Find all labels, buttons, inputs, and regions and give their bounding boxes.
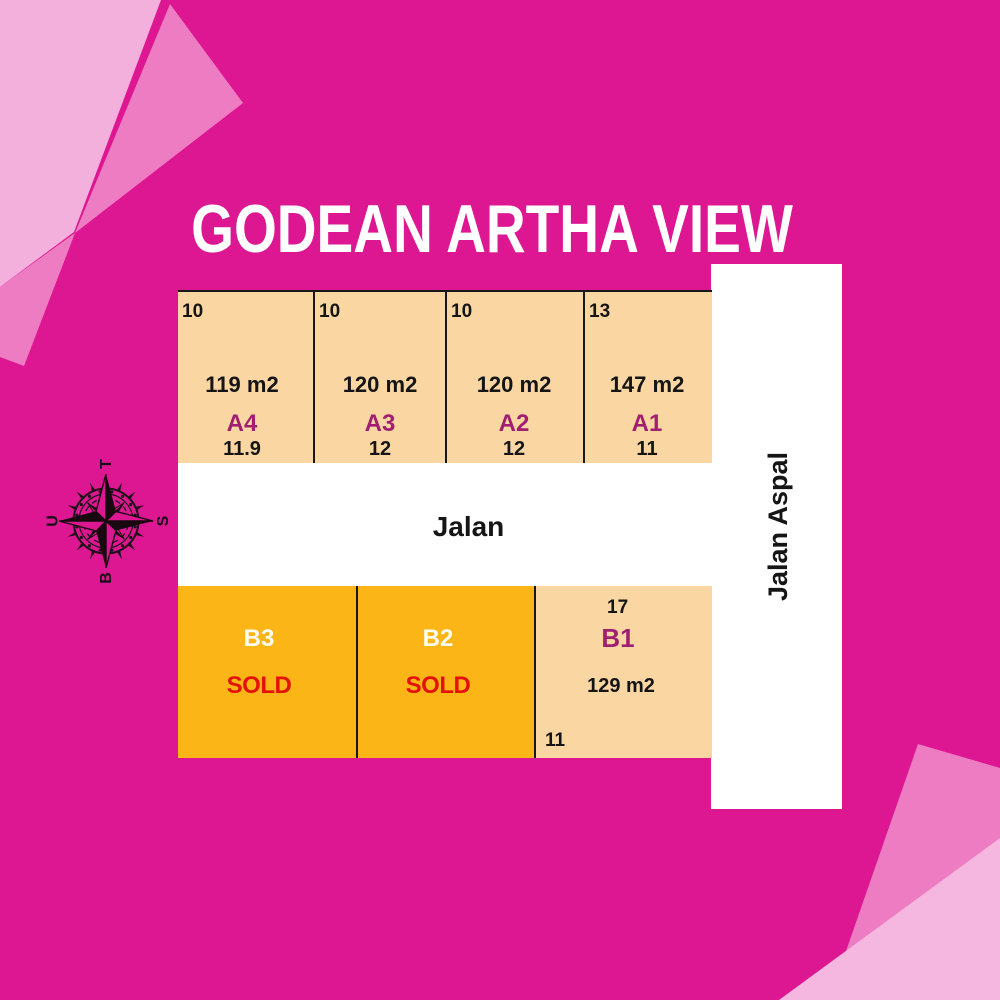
svg-text:S: S xyxy=(155,515,171,526)
svg-text:B: B xyxy=(98,572,115,584)
svg-text:T: T xyxy=(98,459,115,469)
